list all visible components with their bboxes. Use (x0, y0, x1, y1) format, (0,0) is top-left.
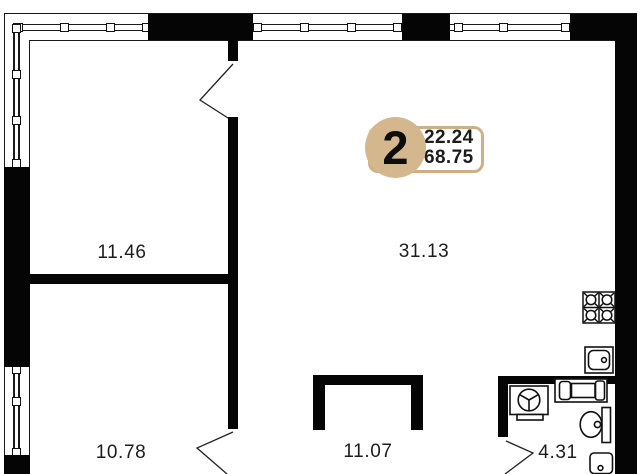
apartment-rooms-count-badge: 2 (365, 117, 426, 178)
room-area-label-hall: 11.07 (343, 441, 392, 463)
stove-icon (583, 292, 615, 323)
room-area-label-top-left: 11.46 (97, 242, 146, 264)
fixtures-layer (0, 0, 640, 474)
apartment-living-area-value: 22.24 (424, 128, 474, 148)
bathroom-sink-icon (590, 453, 613, 474)
washing-machine-icon (510, 386, 548, 420)
room-area-label-bathroom: 4.31 (538, 442, 577, 464)
door-opening-bathroom (505, 441, 533, 474)
apartment-rooms-count: 2 (382, 124, 408, 171)
room-area-label-living: 31.13 (399, 241, 450, 263)
apartment-total-area-value: 68.75 (424, 148, 474, 168)
toilet-icon (580, 408, 610, 443)
door-opening-room-bottom-left (197, 432, 233, 474)
kitchen-sink-icon (585, 347, 613, 373)
room-area-label-bottom-left: 10.78 (96, 442, 147, 464)
bathtub-icon (555, 379, 607, 402)
apartment-badge-areas: 22.24 68.75 (424, 128, 474, 168)
door-opening-room-top-left (200, 64, 233, 118)
floor-plan: 11.46 31.13 10.78 11.07 4.31 22.24 68.75… (0, 0, 640, 474)
